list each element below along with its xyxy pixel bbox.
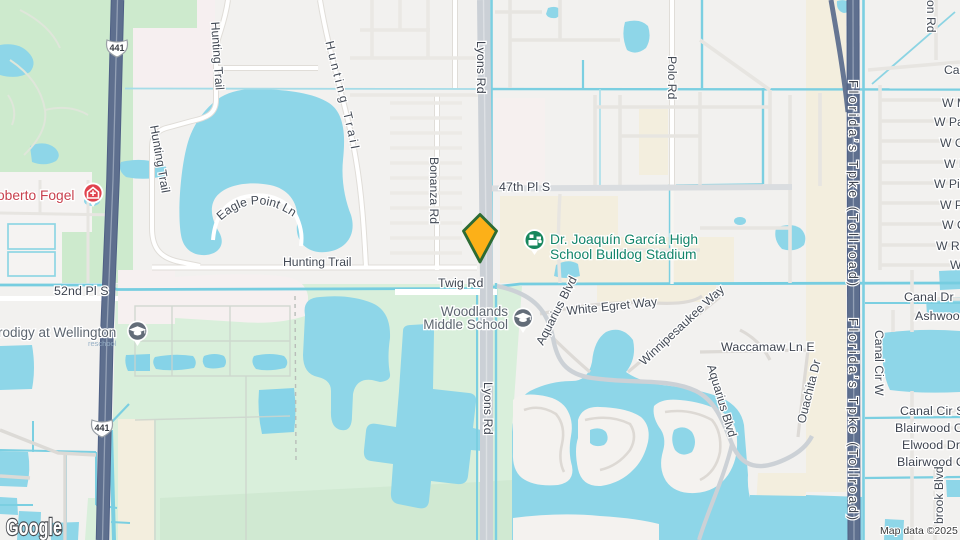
svg-text:47th Pl S: 47th Pl S bbox=[499, 180, 550, 194]
svg-text:441: 441 bbox=[94, 423, 109, 433]
svg-text:Ashwood: Ashwood bbox=[915, 309, 960, 323]
svg-text:W Plu: W Plu bbox=[940, 198, 960, 212]
svg-text:Blairwood Cir: Blairwood Cir bbox=[895, 421, 960, 435]
svg-text:Map data ©2025: Map data ©2025 bbox=[880, 525, 958, 537]
svg-text:W Pal: W Pal bbox=[934, 115, 960, 129]
svg-text:Blairwood Cir: Blairwood Cir bbox=[897, 455, 960, 469]
svg-text:52nd Pl S: 52nd Pl S bbox=[54, 284, 109, 298]
svg-text:W Rub: W Rub bbox=[936, 239, 960, 253]
svg-text:W C: W C bbox=[950, 258, 960, 272]
svg-text:oberto Fogel: oberto Fogel bbox=[0, 188, 74, 203]
svg-text:Polo Rd: Polo Rd bbox=[665, 56, 679, 99]
svg-text:Google: Google bbox=[6, 514, 62, 540]
svg-text:W Co: W Co bbox=[940, 136, 960, 150]
svg-text:on Rd: on Rd bbox=[924, 0, 938, 33]
svg-text:W Ma: W Ma bbox=[942, 96, 960, 110]
svg-text:Lyons Rd: Lyons Rd bbox=[474, 41, 488, 94]
svg-text:Canal Cir W: Canal Cir W bbox=[872, 330, 886, 396]
svg-text:Twig Rd: Twig Rd bbox=[438, 276, 483, 290]
svg-text:Elwood Dr: Elwood Dr bbox=[902, 438, 960, 452]
svg-text:rodigy at Wellington: rodigy at Wellington bbox=[0, 325, 116, 340]
svg-text:W Cy: W Cy bbox=[942, 218, 960, 232]
svg-text:Canal Dr: Canal Dr bbox=[904, 290, 954, 304]
svg-text:Bonanza Rd: Bonanza Rd bbox=[427, 157, 441, 224]
svg-text:reschool: reschool bbox=[88, 339, 117, 348]
svg-text:Canal: Canal bbox=[944, 63, 960, 77]
svg-text:School Bulldog Stadium: School Bulldog Stadium bbox=[550, 247, 697, 262]
svg-text:Canal Cir S: Canal Cir S bbox=[900, 404, 960, 418]
svg-text:Waccamaw Ln E: Waccamaw Ln E bbox=[721, 340, 815, 354]
svg-text:W Pine: W Pine bbox=[934, 177, 960, 191]
svg-text:W Pi: W Pi bbox=[944, 157, 960, 171]
svg-text:brook Blvd: brook Blvd bbox=[932, 466, 946, 524]
svg-text:Dr. Joaquín García High: Dr. Joaquín García High bbox=[550, 232, 698, 247]
svg-text:Middle School: Middle School bbox=[423, 317, 508, 332]
svg-text:441: 441 bbox=[109, 43, 124, 53]
svg-text:Lyons Rd: Lyons Rd bbox=[481, 382, 495, 435]
svg-text:Hunting Trail: Hunting Trail bbox=[283, 255, 351, 269]
